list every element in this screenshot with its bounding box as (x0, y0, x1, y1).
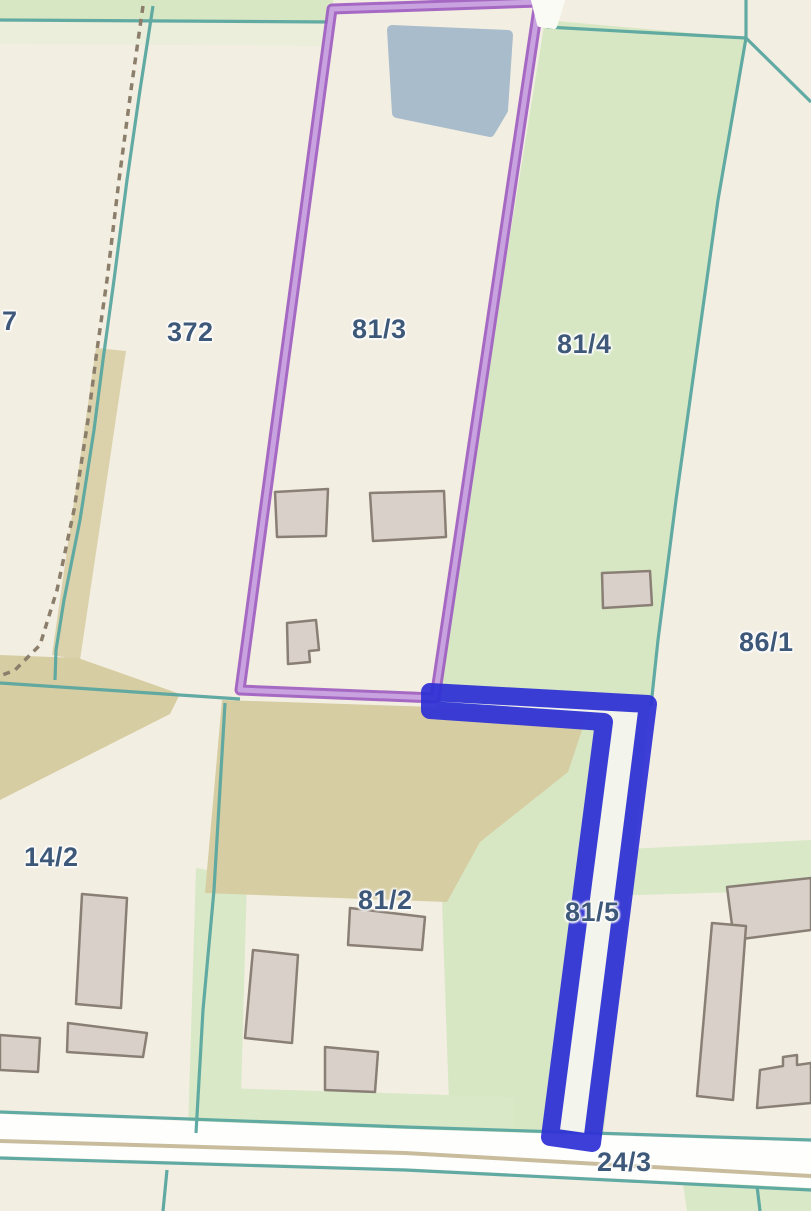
building (0, 1035, 40, 1072)
boundary-top-left (0, 20, 332, 22)
green-fade-top-left (0, 21, 331, 46)
building (275, 489, 328, 537)
building (602, 571, 652, 608)
building (370, 491, 446, 541)
large-structure (392, 30, 508, 132)
white-gap-top (534, 0, 562, 26)
building (76, 894, 127, 1008)
building (245, 950, 298, 1043)
map-canvas[interactable] (0, 0, 811, 1211)
green-strip-top-left (0, 0, 333, 21)
map-viewport[interactable]: 7 372 81/3 81/4 86/1 14/2 81/2 81/5 24/3 (0, 0, 811, 1211)
building (325, 1047, 378, 1092)
